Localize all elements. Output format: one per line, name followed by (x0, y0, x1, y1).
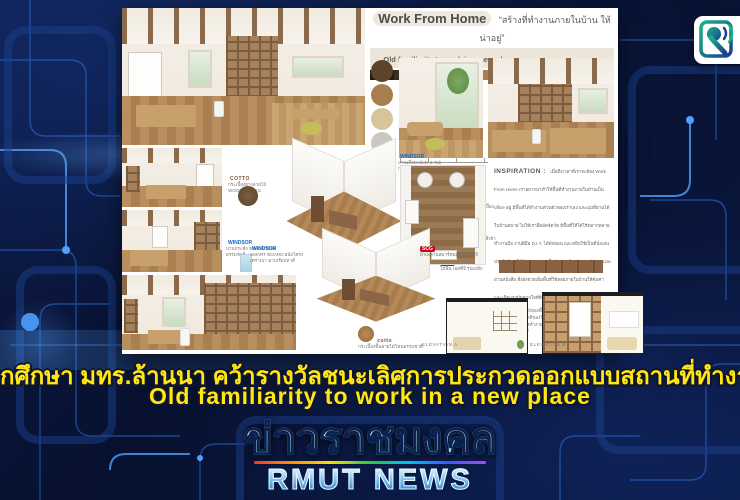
elevation-b-label: ELEVATION B (530, 342, 566, 347)
work-table (550, 128, 606, 154)
rmut-radio-logo-card (694, 16, 740, 64)
banner-thai-title: ข่าวราชมงคล (0, 418, 740, 460)
shelf-rack (124, 299, 138, 333)
dimension-line (400, 158, 488, 163)
banner-english-title: RMUT NEWS (0, 466, 740, 495)
daybed (607, 337, 637, 350)
rmut-radio-logo-icon (699, 20, 739, 60)
window (188, 50, 212, 88)
plan-round-table (449, 172, 465, 188)
callout-windsor-3: WINDSOR SMART BOARD ผนังโครงเคร่าเบา ฉาบ… (250, 246, 306, 264)
work-table (146, 185, 186, 199)
inspiration-paragraph-1: เมื่อถึงเวลาที่เราจะต้อง Work From Home … (494, 169, 611, 300)
render-small-a (122, 148, 222, 207)
board-header: Work From Home “สร้างที่ทำงานภายในบ้าน ใ… (370, 10, 614, 56)
render-main-office (122, 8, 365, 145)
iso-shelf (311, 196, 324, 222)
work-table (130, 250, 168, 266)
whiteboard (128, 52, 162, 98)
cotto-floor-sample (358, 326, 374, 342)
callout-note: SMART BOARD ผนังโครงเคร่าเบา ฉาบเรียบทาส… (250, 252, 306, 263)
material-swatch (371, 108, 393, 130)
ceiling-beams (122, 148, 222, 163)
material-swatch (371, 84, 393, 106)
iso-wardrobe (342, 279, 355, 299)
window (578, 88, 608, 114)
cabinet (609, 311, 639, 328)
pouf-cushion (425, 138, 445, 150)
white-chair (180, 328, 190, 346)
work-table (136, 105, 196, 127)
whiteboard (569, 302, 591, 337)
callout-note: ฝ้าเพดานสมาร์ทบอร์ด เอสซีจี (420, 252, 480, 258)
window (162, 297, 186, 327)
news-banner: ข่าวราชมงคล RMUT NEWS (0, 418, 740, 495)
material-swatch (371, 60, 393, 82)
plan-desk (405, 200, 419, 224)
plant (517, 340, 524, 349)
plan-counter (463, 218, 479, 248)
office-chair (214, 101, 224, 117)
inspiration-heading: INSPIRATION : (494, 168, 546, 175)
render-office-two (488, 58, 614, 158)
plan-round-table (417, 172, 433, 188)
whiteboard (152, 226, 168, 248)
design-board: Work From Home “สร้างที่ทำงานภายในบ้าน ใ… (122, 8, 618, 354)
board-title-th: “สร้างที่ทำงานภายในบ้าน ให้น่าอยู่” (480, 15, 611, 43)
render-small-b (122, 210, 222, 272)
picture-frame-wall (493, 311, 517, 330)
news-graphic-page: Work From Home “สร้างที่ทำงานภายในบ้าน ใ… (0, 0, 740, 500)
shelf-rack (126, 166, 140, 192)
board-title-en: Work From Home (373, 11, 491, 26)
headline-english: Old familiarity to work in a new place (0, 383, 740, 410)
elevation-a-drawing (446, 298, 528, 354)
window (292, 56, 344, 78)
render-home-library (122, 275, 296, 350)
low-table (407, 122, 443, 136)
inspiration-block: INSPIRATION : เมื่อถึงเวลาที่เราจะต้อง W… (494, 160, 612, 256)
bookshelf-wall (204, 283, 296, 341)
reading-desk (148, 330, 182, 344)
pouf-cushion (300, 122, 322, 135)
elevation-a-label: ELEVATION A (422, 342, 458, 347)
tree-view (447, 68, 469, 94)
material-dot-wood (238, 186, 258, 206)
wood-texture-strip (499, 260, 603, 273)
office-chair (532, 129, 541, 144)
render-window-room (399, 58, 483, 158)
board-title: Work From Home “สร้างที่ทำงานภายในบ้าน ใ… (370, 10, 614, 46)
ceiling-beams (488, 58, 614, 84)
low-table (292, 109, 340, 119)
callout-scg-2: SCG ฝ้าเพดานสมาร์ทบอร์ด เอสซีจี (420, 246, 480, 258)
